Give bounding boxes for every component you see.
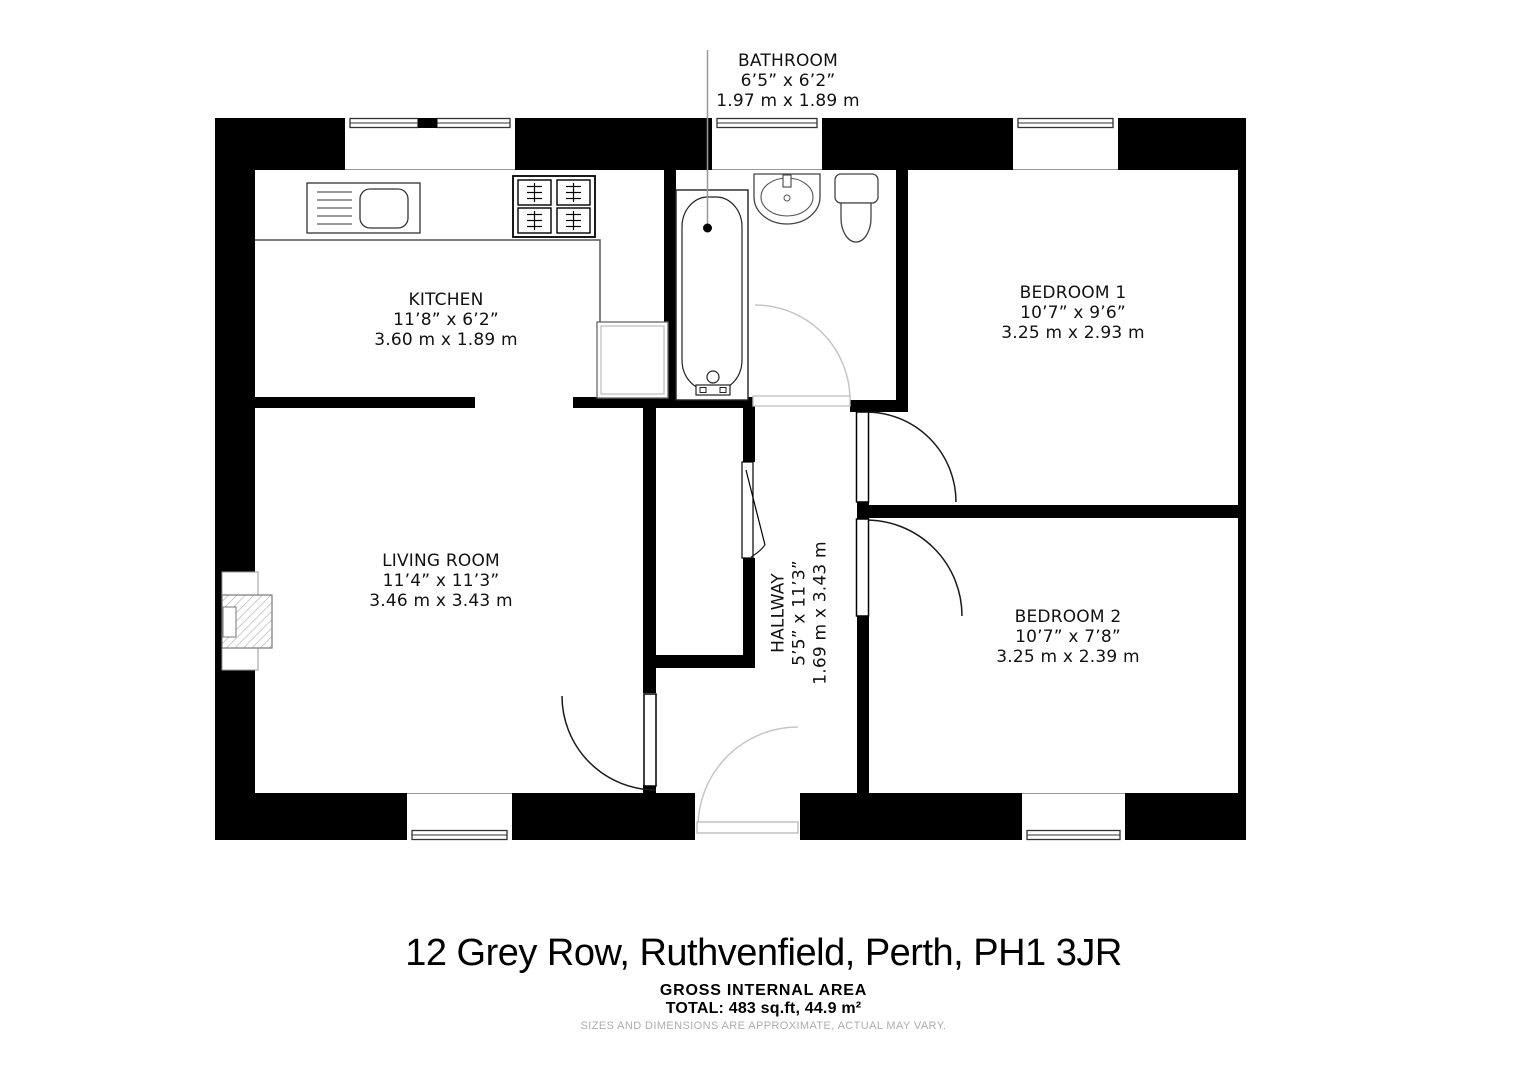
bathtub [676, 190, 748, 400]
toilet [835, 174, 878, 242]
room-name: LIVING ROOM [369, 551, 513, 571]
room-size-metric: 3.46 m x 3.43 m [369, 591, 513, 611]
property-address: 12 Grey Row, Ruthvenfield, Perth, PH1 3J… [0, 932, 1527, 975]
room-name: HALLWAY [769, 541, 790, 685]
bedroom1-label: BEDROOM 1 10’7” x 9’6” 3.25 m x 2.93 m [1001, 283, 1145, 343]
room-size-imperial: 11’8” x 6’2” [374, 310, 518, 330]
room-size-imperial: 10’7” x 7’8” [996, 627, 1140, 647]
kitchen-appliance [597, 322, 668, 398]
total-area-value: TOTAL: 483 sq.ft, 44.9 m² [0, 1000, 1527, 1018]
room-size-metric: 3.25 m x 2.93 m [1001, 323, 1145, 343]
floor-plan-canvas [0, 0, 1527, 1080]
kitchen-label: KITCHEN 11’8” x 6’2” 3.60 m x 1.89 m [374, 290, 518, 350]
washbasin [754, 174, 820, 224]
gross-internal-area-heading: GROSS INTERNAL AREA [0, 982, 1527, 1000]
living-room-window [407, 793, 512, 840]
living-room-label: LIVING ROOM 11’4” x 11’3” 3.46 m x 3.43 … [369, 551, 513, 611]
room-size-metric: 3.25 m x 2.39 m [996, 647, 1140, 667]
bedroom2-window [1022, 793, 1125, 840]
bathroom-door [753, 305, 850, 406]
bedroom2-label: BEDROOM 2 10’7” x 7’8” 3.25 m x 2.39 m [996, 607, 1140, 667]
fireplace [222, 572, 272, 670]
room-size-metric: 1.69 m x 3.43 m [811, 541, 832, 685]
hob [513, 176, 595, 237]
floor-plan-page: BATHROOM 6’5” x 6’2” 1.97 m x 1.89 m KIT… [0, 0, 1527, 1080]
hallway-label: HALLWAY 5’5” x 11’3” 1.69 m x 3.43 m [769, 541, 832, 685]
closet-door [742, 462, 765, 558]
room-size-imperial: 10’7” x 9’6” [1001, 303, 1145, 323]
bathroom-label: BATHROOM 6’5” x 6’2” 1.97 m x 1.89 m [716, 51, 860, 111]
bathroom-window [712, 118, 822, 170]
kitchen-window [345, 118, 515, 170]
room-name: BATHROOM [716, 51, 860, 71]
disclaimer-text: SIZES AND DIMENSIONS ARE APPROXIMATE, AC… [0, 1020, 1527, 1032]
kitchen-sink [307, 183, 420, 233]
room-size-imperial: 5’5” x 11’3” [790, 541, 811, 685]
room-name: BEDROOM 1 [1001, 283, 1145, 303]
room-name: KITCHEN [374, 290, 518, 310]
living-room-door [562, 694, 656, 790]
room-size-metric: 3.60 m x 1.89 m [374, 330, 518, 350]
front-door [697, 727, 798, 833]
bedroom1-door [857, 412, 957, 502]
room-size-imperial: 6’5” x 6’2” [716, 71, 860, 91]
room-size-imperial: 11’4” x 11’3” [369, 571, 513, 591]
room-size-metric: 1.97 m x 1.89 m [716, 91, 860, 111]
bedroom2-door [857, 519, 963, 616]
room-name: BEDROOM 2 [996, 607, 1140, 627]
bedroom1-window [1013, 118, 1118, 170]
